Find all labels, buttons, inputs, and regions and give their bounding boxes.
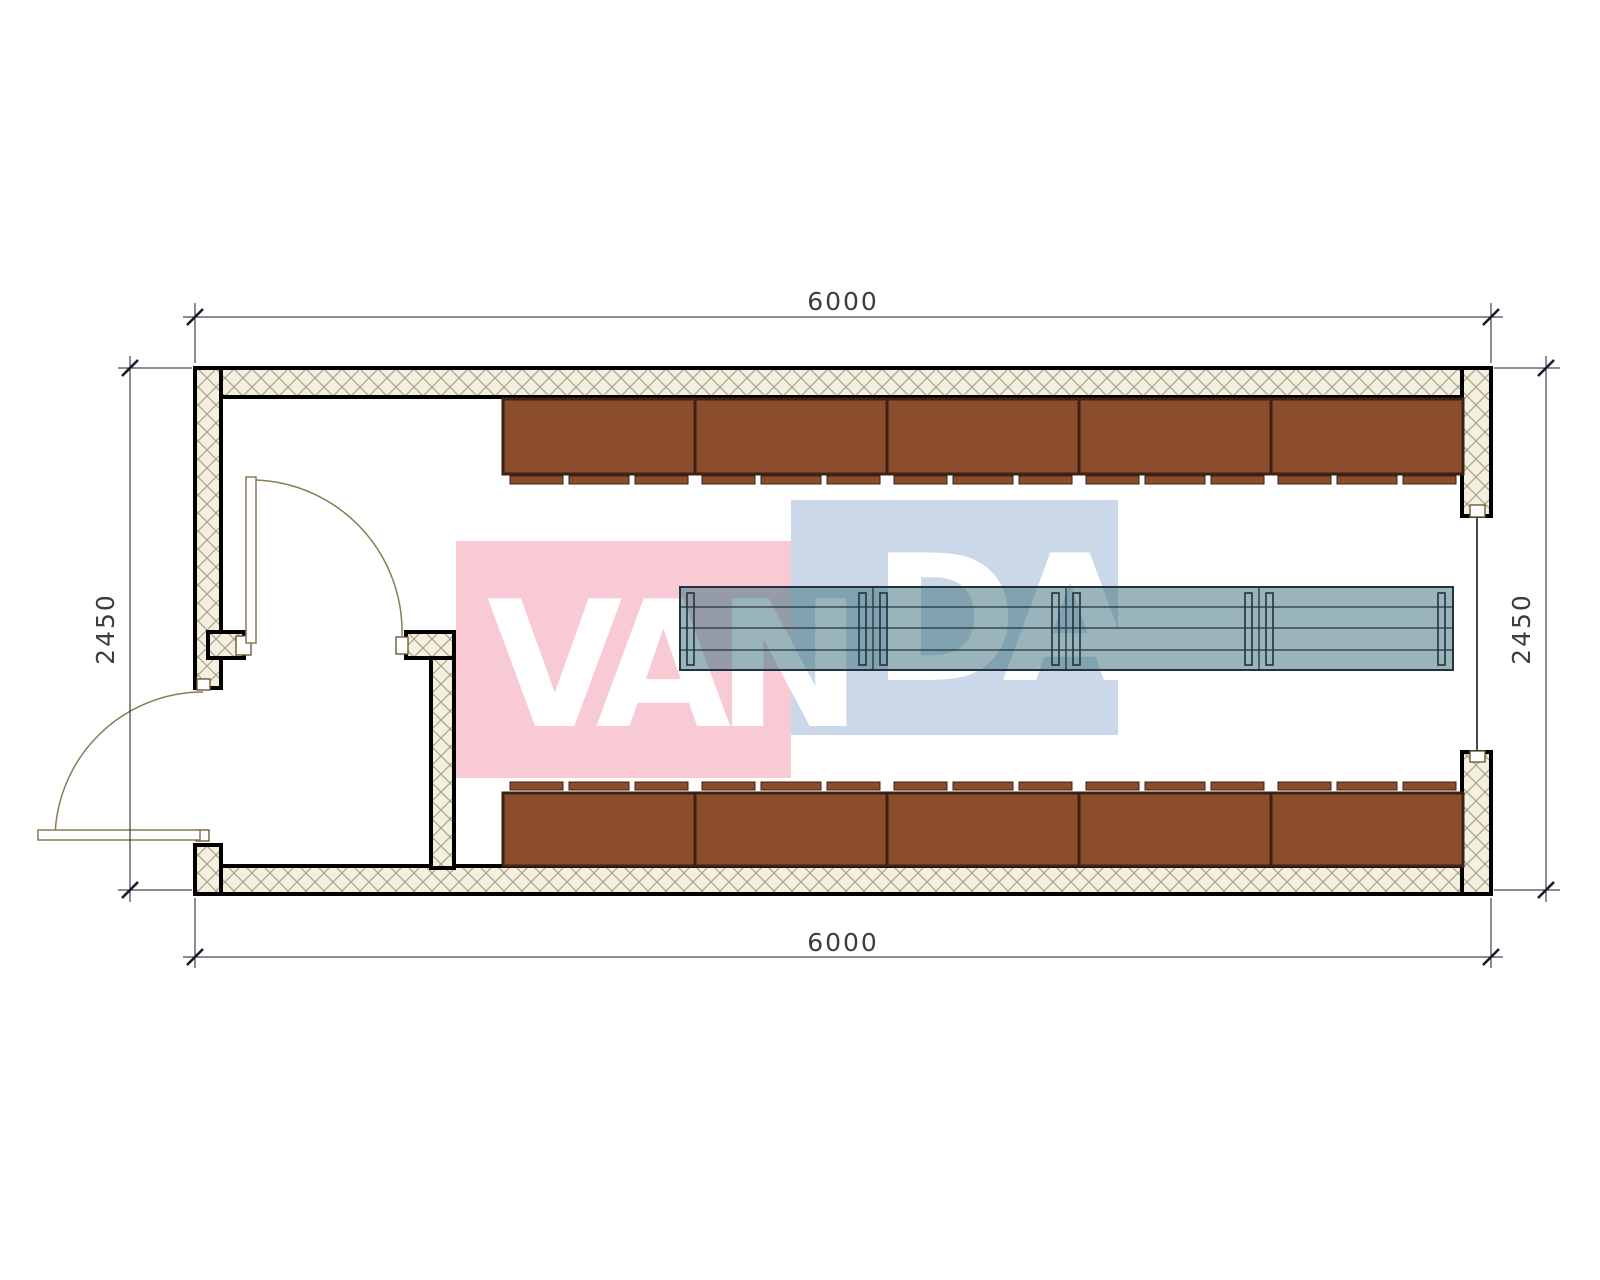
table xyxy=(680,587,1453,670)
cabinet xyxy=(1271,782,1463,866)
wall-right-upper xyxy=(1462,368,1491,516)
cabinet xyxy=(1079,782,1271,866)
wall-left-lower xyxy=(195,845,221,894)
exterior-door-leaf xyxy=(38,830,200,840)
wall-right-lower xyxy=(1462,752,1491,894)
cabinet xyxy=(695,782,887,866)
interior-door-leaf xyxy=(246,477,256,643)
dimension-right-label: 2450 xyxy=(1507,593,1536,665)
cabinet-row-bottom xyxy=(503,782,1463,866)
cabinet xyxy=(887,399,1079,484)
dimension-bottom-label: 6000 xyxy=(807,928,879,957)
dimension-left-label: 2450 xyxy=(91,593,120,665)
wall-top xyxy=(195,368,1491,397)
cabinet xyxy=(503,399,695,484)
partition-top xyxy=(406,632,454,658)
jamb-interior-right xyxy=(396,637,408,654)
cabinet xyxy=(887,782,1079,866)
cabinet xyxy=(503,782,695,866)
partition-vertical xyxy=(431,658,454,868)
cabinet xyxy=(695,399,887,484)
cabinet xyxy=(1271,399,1463,484)
cabinet xyxy=(1079,399,1271,484)
floor-plan-page: VAN DA xyxy=(0,0,1600,1280)
wall-bottom xyxy=(195,866,1491,894)
jamb-right-upper xyxy=(1470,505,1485,517)
dimension-top-label: 6000 xyxy=(807,287,879,316)
jamb-exterior-top xyxy=(197,679,210,690)
floor-plan-svg: VAN DA xyxy=(0,0,1600,1280)
jamb-right-lower xyxy=(1470,751,1485,762)
cabinet-row-top xyxy=(503,399,1463,484)
